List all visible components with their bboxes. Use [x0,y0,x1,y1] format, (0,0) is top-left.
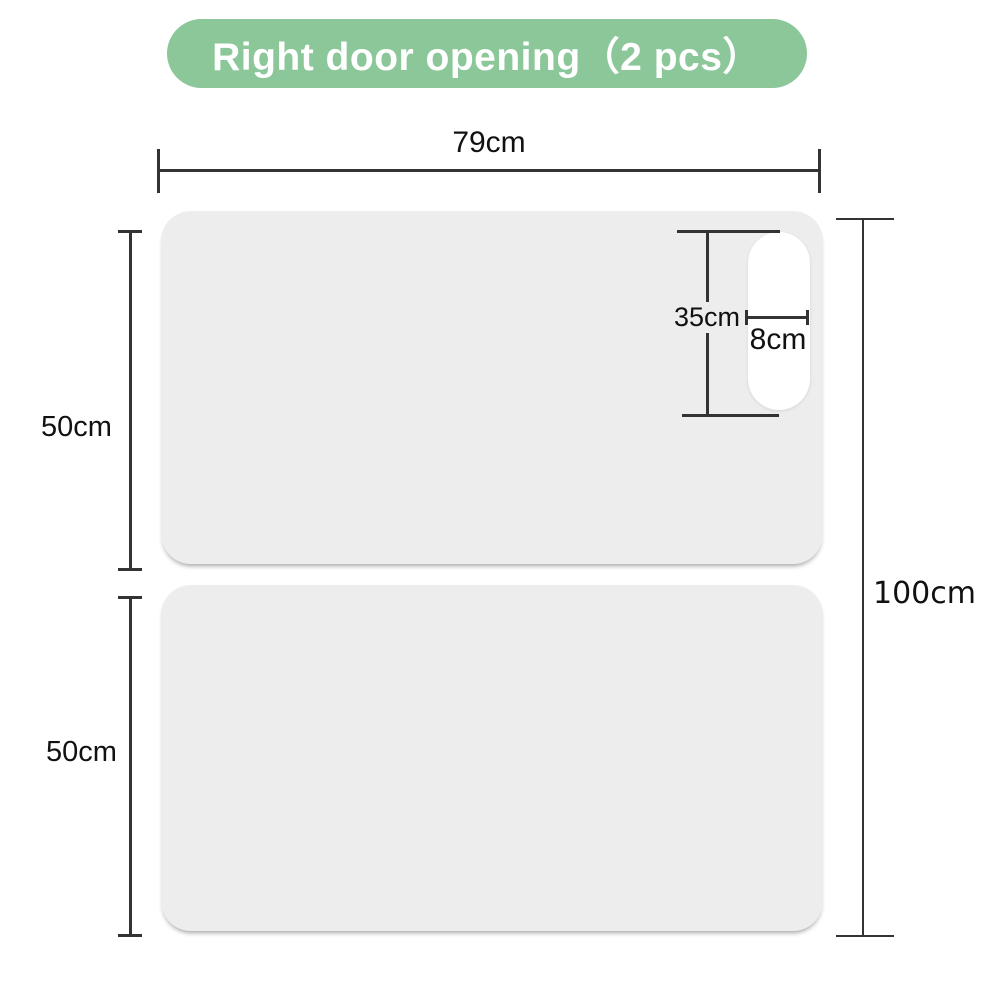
panel-width-tick-right [818,149,821,193]
bottom-panel-height-tick-top [118,596,142,599]
handle-width-dimension-line [746,316,809,319]
panel-width-dimension-line [158,169,820,172]
handle-height-tick-bottom [682,414,779,417]
top-panel-height-tick-top [118,230,142,233]
bottom-door-panel [161,585,823,931]
total-height-tick-top [836,218,894,220]
handle-width-label: 8cm [745,323,811,357]
top-panel-height-label: 50cm [41,411,112,444]
top-panel-height-tick-bottom [118,568,142,571]
handle-height-tick-top [677,230,780,233]
handle-cutout [748,232,810,410]
panel-width-tick-left [157,149,160,193]
total-height-dimension-line [862,219,864,937]
top-door-panel [161,211,823,564]
handle-height-label: 35cm [671,302,743,333]
bottom-panel-height-tick-bottom [118,934,142,937]
top-panel-height-dimension-line [129,231,132,571]
total-height-tick-bottom [836,935,894,937]
bottom-panel-height-dimension-line [129,597,132,937]
total-height-label: 100cm [873,576,976,611]
bottom-panel-height-label: 50cm [46,736,117,769]
title-badge: Right door opening（2 pcs） [167,19,807,88]
title-text: Right door opening（2 pcs） [212,26,762,82]
product-dimension-diagram: Right door opening（2 pcs） 79cm 35cm 8cm … [0,0,1000,1000]
panel-width-label: 79cm [159,126,819,160]
